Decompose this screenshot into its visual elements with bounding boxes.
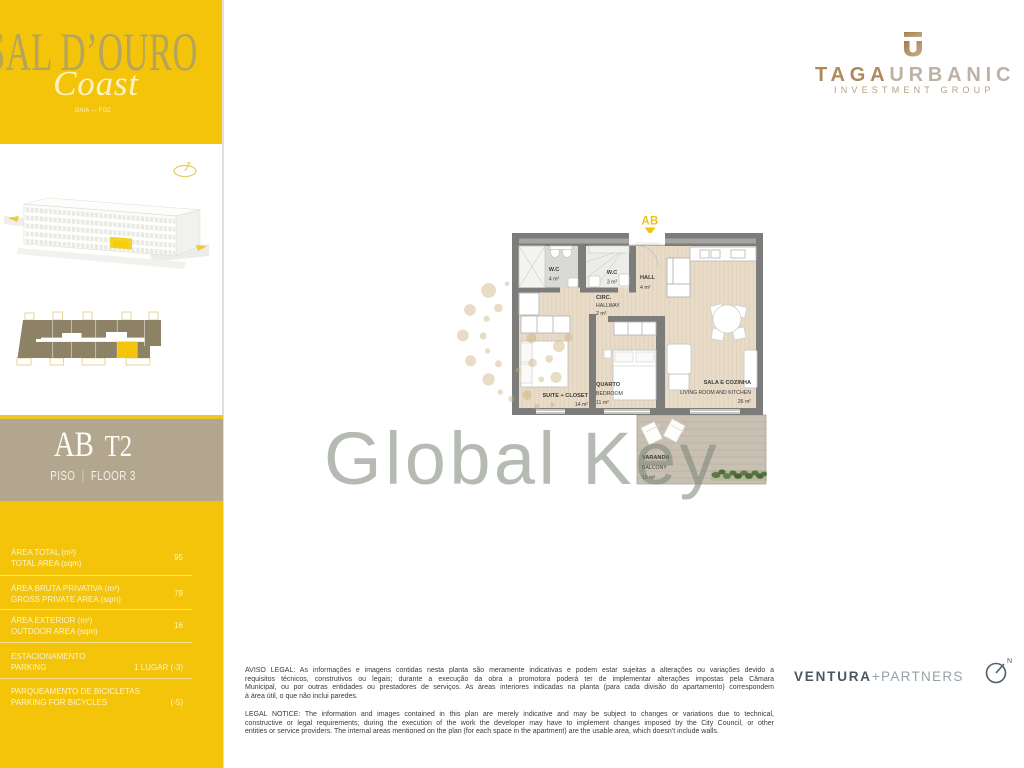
svg-text:N: N (1007, 658, 1012, 665)
svg-text:4 m²: 4 m² (640, 285, 651, 291)
svg-text:AB: AB (641, 216, 658, 228)
svg-text:HALL: HALL (640, 275, 655, 281)
svg-text:26 m²: 26 m² (738, 399, 752, 405)
svg-text:SALA E COZINHA: SALA E COZINHA (704, 380, 751, 386)
svg-text:LIVING ROOM AND KITCHEN: LIVING ROOM AND KITCHEN (680, 390, 751, 396)
